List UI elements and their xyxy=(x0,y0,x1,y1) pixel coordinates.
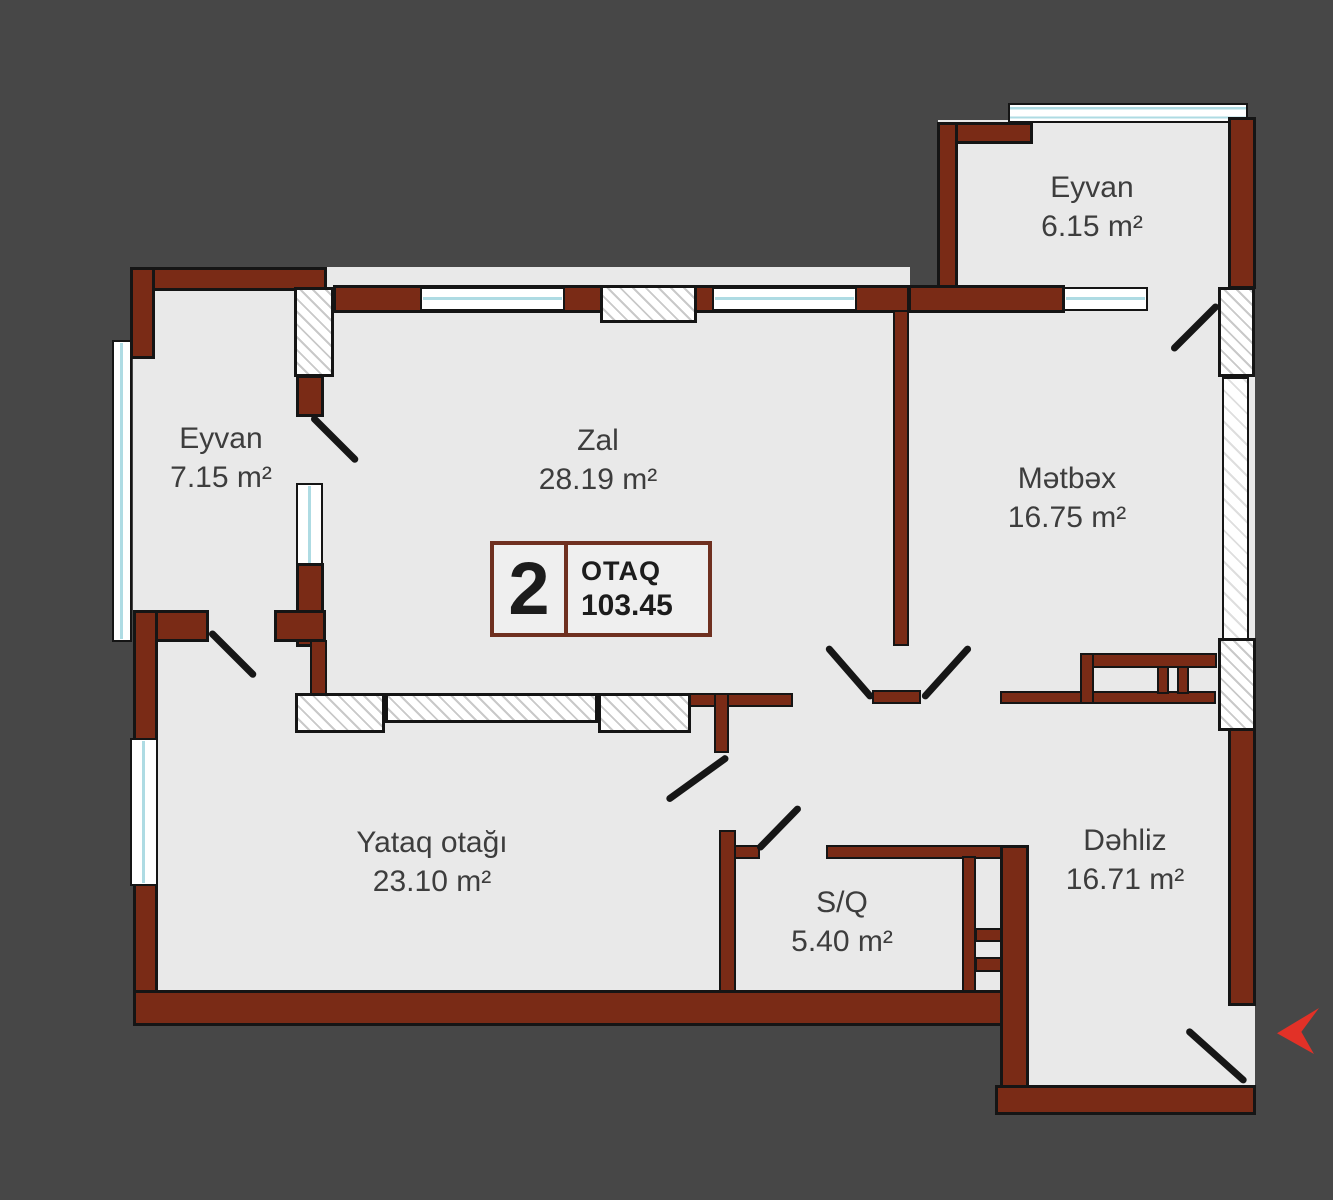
room-area: 23.10 m² xyxy=(356,862,507,901)
hatch-block xyxy=(295,693,385,733)
window xyxy=(130,738,158,886)
hatch-block xyxy=(598,693,691,733)
wall-segment xyxy=(714,693,729,753)
wall-segment xyxy=(826,845,1004,859)
wall-segment xyxy=(1000,845,1029,1115)
room-name: Mətbəx xyxy=(1008,459,1126,498)
badge-rooms-count: 2 xyxy=(494,545,568,633)
window xyxy=(296,483,323,567)
wall-segment xyxy=(130,267,155,359)
wall-segment xyxy=(310,640,327,696)
window xyxy=(1063,287,1148,311)
room-name: Yataq otağı xyxy=(356,823,507,862)
hatch-block xyxy=(294,287,334,377)
room-name: Zal xyxy=(539,421,657,460)
room-label-eyvan-top: Eyvan 6.15 m² xyxy=(1041,168,1143,246)
wall-segment xyxy=(962,856,976,992)
window xyxy=(420,287,565,311)
room-area: 28.19 m² xyxy=(539,460,657,499)
hatch-block xyxy=(1218,638,1256,731)
room-label-sq: S/Q 5.40 m² xyxy=(791,883,893,961)
window xyxy=(112,340,132,642)
room-area: 6.15 m² xyxy=(1041,207,1143,246)
room-area: 7.15 m² xyxy=(170,458,272,497)
kitchen-counter xyxy=(1157,666,1169,694)
window xyxy=(712,287,857,311)
room-area: 5.40 m² xyxy=(791,922,893,961)
floor-plan-canvas: Eyvan 6.15 m² Eyvan 7.15 m² Zal 28.19 m²… xyxy=(0,0,1333,1200)
room-name: Eyvan xyxy=(170,419,272,458)
wall-segment xyxy=(893,310,909,646)
hatch-block xyxy=(385,693,598,723)
wall-segment xyxy=(908,285,1065,313)
hatch-block xyxy=(1222,377,1249,640)
entrance-arrow-icon xyxy=(1277,1008,1319,1054)
window xyxy=(1008,103,1248,123)
duct-bar xyxy=(975,957,1002,972)
badge-label: OTAQ xyxy=(581,556,708,587)
hatch-block xyxy=(600,285,697,323)
hatch-block xyxy=(1218,287,1255,377)
wall-segment xyxy=(995,1085,1256,1115)
room-area: 16.71 m² xyxy=(1066,860,1184,899)
area-badge: 2 OTAQ 103.45 xyxy=(490,541,712,637)
wall-segment xyxy=(133,990,1028,1026)
wall-segment xyxy=(937,122,958,288)
room-name: Dəhliz xyxy=(1066,821,1184,860)
room-label-dehliz: Dəhliz 16.71 m² xyxy=(1066,821,1184,899)
badge-total-area: 103.45 xyxy=(581,589,708,623)
wall-segment xyxy=(872,690,921,704)
wall-segment xyxy=(1228,117,1256,289)
room-label-yataq: Yataq otağı 23.10 m² xyxy=(356,823,507,901)
wall-segment xyxy=(296,375,324,417)
wall-segment xyxy=(689,693,793,707)
kitchen-counter xyxy=(1080,653,1094,704)
badge-info: OTAQ 103.45 xyxy=(568,545,708,633)
duct-bar xyxy=(975,928,1002,942)
kitchen-counter xyxy=(1080,653,1217,668)
room-area: 16.75 m² xyxy=(1008,498,1126,537)
wall-segment xyxy=(274,610,326,642)
wall-segment xyxy=(1228,728,1256,1006)
room-label-zal: Zal 28.19 m² xyxy=(539,421,657,499)
room-label-metbex: Mətbəx 16.75 m² xyxy=(1008,459,1126,537)
room-name: S/Q xyxy=(791,883,893,922)
kitchen-counter xyxy=(1177,666,1189,694)
room-name: Eyvan xyxy=(1041,168,1143,207)
room-label-eyvan-left: Eyvan 7.15 m² xyxy=(170,419,272,497)
